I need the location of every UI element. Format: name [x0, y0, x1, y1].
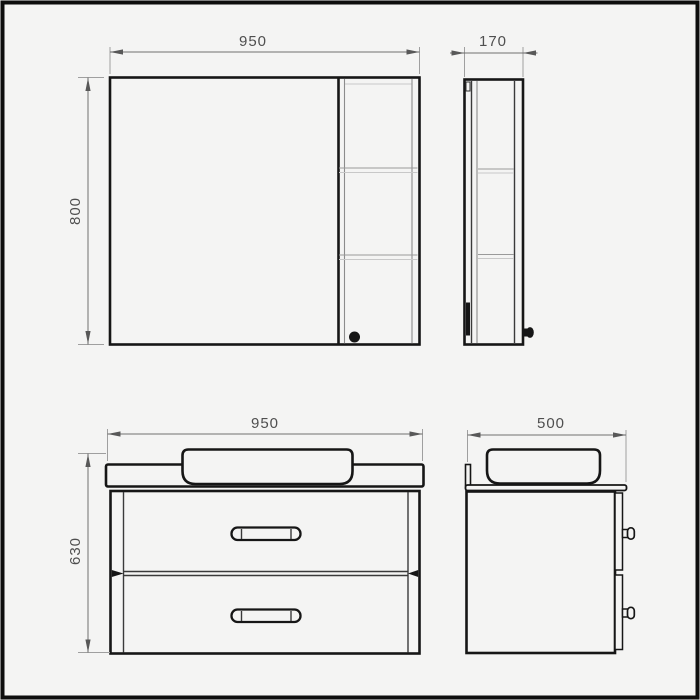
drawer-front-top: [615, 493, 623, 570]
dim-label-vanity-width: 950: [251, 415, 279, 432]
dim-label-mirror-depth: 170: [479, 33, 507, 50]
drawer-front-bottom: [615, 575, 623, 650]
basin-front: [183, 450, 353, 485]
technical-drawing-page: 950 800 170: [0, 0, 700, 700]
dim-label-mirror-width: 950: [239, 33, 267, 50]
drawing-canvas: 950 800 170: [0, 0, 700, 700]
dim-label-vanity-height: 630: [67, 537, 84, 565]
countertop-side: [466, 485, 627, 491]
cabinet-knob: [349, 332, 360, 343]
knob-cap: [526, 327, 534, 338]
handle-cap-bottom: [628, 607, 635, 618]
wall-bracket-bottom: [466, 303, 470, 336]
basin-side: [487, 450, 600, 484]
dim-label-mirror-height: 800: [67, 197, 84, 225]
page-background: [0, 0, 700, 700]
handle-cap-top: [628, 528, 635, 539]
dim-label-vanity-depth: 500: [537, 415, 565, 432]
